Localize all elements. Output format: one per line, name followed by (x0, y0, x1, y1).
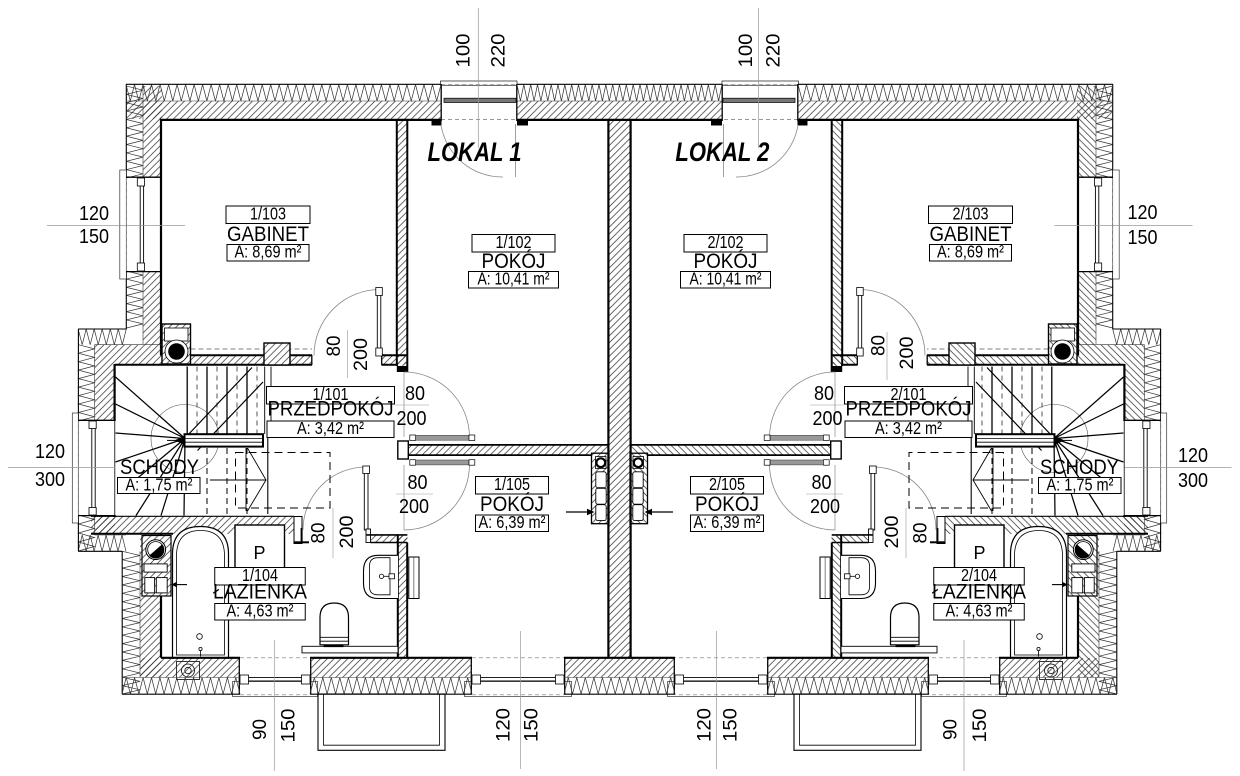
svg-text:150: 150 (279, 709, 300, 743)
svg-text:PRZEDPOKÓJ: PRZEDPOKÓJ (268, 396, 394, 421)
svg-text:120: 120 (79, 203, 109, 225)
svg-text:220: 220 (764, 34, 785, 68)
svg-text:A: 8,69 m²: A: 8,69 m² (235, 242, 302, 262)
svg-text:200: 200 (399, 496, 429, 518)
svg-text:200: 200 (337, 516, 358, 549)
svg-text:150: 150 (1128, 227, 1158, 249)
svg-text:A: 3,42 m²: A: 3,42 m² (875, 418, 942, 438)
svg-text:300: 300 (1178, 470, 1208, 492)
svg-text:80: 80 (324, 336, 345, 357)
svg-text:80: 80 (408, 472, 428, 494)
svg-text:120: 120 (1178, 445, 1208, 467)
svg-text:A: 10,41 m²: A: 10,41 m² (690, 269, 762, 289)
svg-text:P: P (253, 543, 265, 563)
svg-text:200: 200 (882, 516, 903, 549)
svg-text:A: 1,75 m²: A: 1,75 m² (126, 475, 193, 495)
svg-text:A: 1,75 m²: A: 1,75 m² (1047, 475, 1114, 495)
svg-text:220: 220 (489, 34, 510, 68)
svg-text:A: 6,39 m²: A: 6,39 m² (479, 512, 546, 532)
svg-text:80: 80 (309, 523, 330, 544)
svg-text:80: 80 (814, 383, 834, 405)
svg-text:200: 200 (810, 496, 840, 518)
svg-text:200: 200 (813, 408, 843, 430)
svg-text:120: 120 (695, 708, 716, 742)
svg-text:80: 80 (869, 335, 890, 356)
svg-text:150: 150 (79, 226, 109, 248)
svg-text:1/103: 1/103 (250, 204, 286, 224)
svg-text:A: 3,42 m²: A: 3,42 m² (297, 418, 364, 438)
svg-text:100: 100 (454, 34, 475, 68)
svg-text:80: 80 (812, 472, 832, 494)
svg-text:A: 8,69 m²: A: 8,69 m² (937, 242, 1004, 262)
svg-text:120: 120 (494, 708, 515, 742)
svg-text:200: 200 (351, 338, 372, 371)
svg-text:90: 90 (250, 719, 271, 740)
svg-text:150: 150 (970, 709, 991, 743)
svg-text:PRZEDPOKÓJ: PRZEDPOKÓJ (846, 396, 972, 421)
svg-text:200: 200 (897, 337, 918, 370)
svg-text:90: 90 (941, 719, 962, 740)
svg-text:80: 80 (911, 523, 932, 544)
svg-text:120: 120 (35, 441, 65, 463)
svg-text:200: 200 (397, 408, 427, 430)
svg-text:LOKAL 1: LOKAL 1 (428, 137, 522, 167)
svg-text:100: 100 (736, 34, 757, 68)
svg-text:P: P (973, 543, 985, 563)
svg-text:120: 120 (1128, 202, 1158, 224)
svg-text:150: 150 (522, 708, 543, 742)
svg-text:80: 80 (405, 383, 425, 405)
svg-text:A: 10,41 m²: A: 10,41 m² (478, 269, 550, 289)
svg-text:1/105: 1/105 (494, 474, 530, 494)
svg-text:LOKAL 2: LOKAL 2 (675, 137, 769, 167)
svg-text:150: 150 (721, 708, 742, 742)
svg-text:2/103: 2/103 (953, 204, 989, 224)
svg-text:A: 6,39 m²: A: 6,39 m² (694, 512, 761, 532)
svg-text:A: 4,63 m²: A: 4,63 m² (946, 601, 1013, 621)
svg-text:A: 4,63 m²: A: 4,63 m² (227, 601, 294, 621)
svg-text:2/105: 2/105 (709, 474, 745, 494)
svg-text:300: 300 (35, 469, 65, 491)
